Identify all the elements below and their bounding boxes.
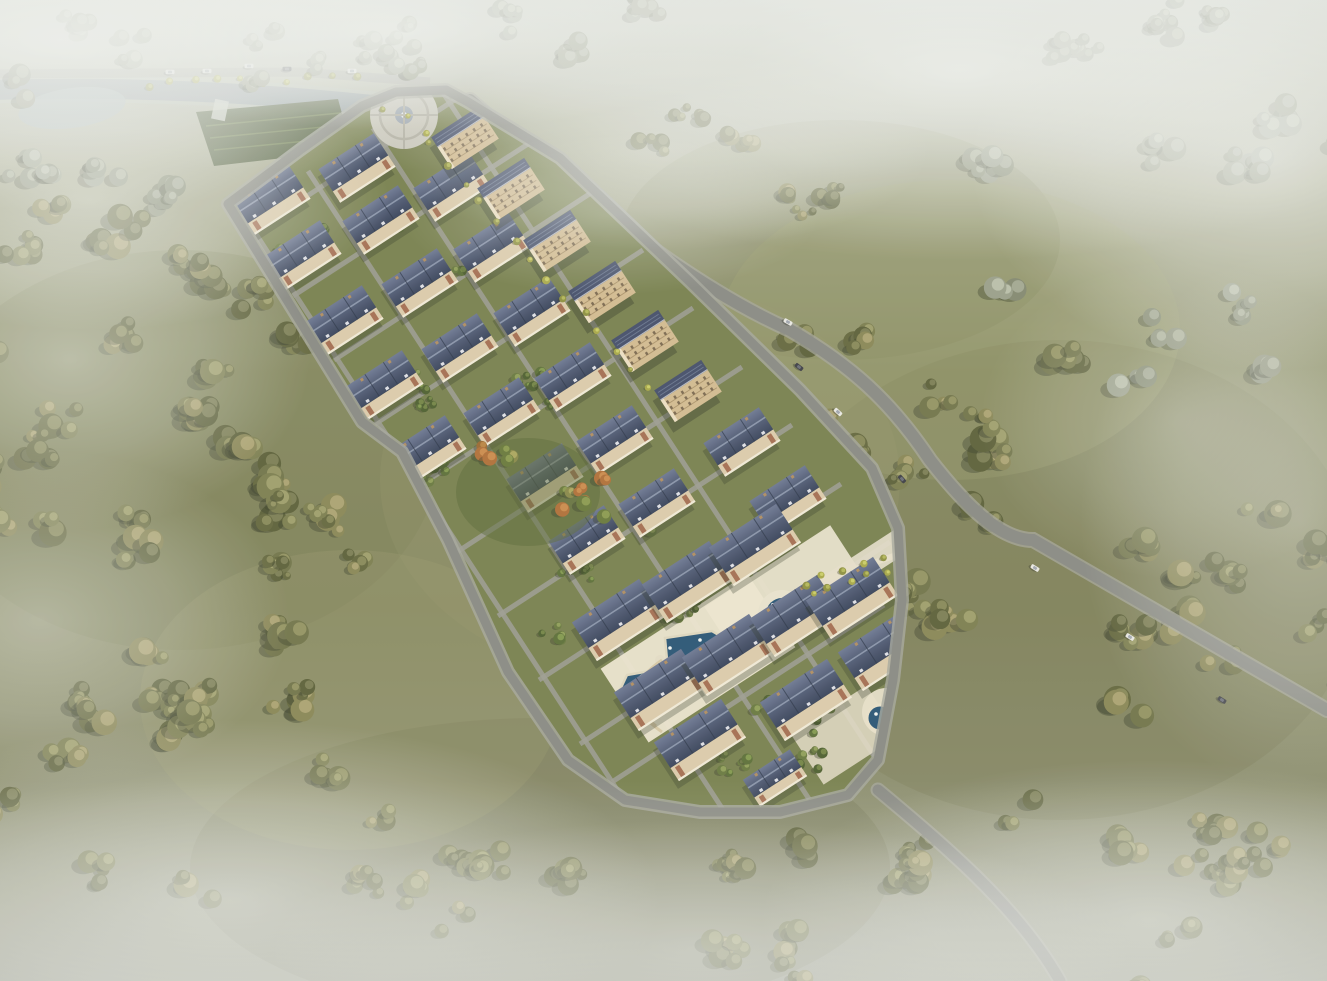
- aerial-rendering: Aerial bird's-eye architectural renderin…: [0, 0, 1327, 981]
- fog-layer: [0, 0, 1327, 981]
- atmospheric-veil: [0, 0, 1327, 981]
- aerial-rendering-stage: Aerial bird's-eye architectural renderin…: [0, 0, 1327, 981]
